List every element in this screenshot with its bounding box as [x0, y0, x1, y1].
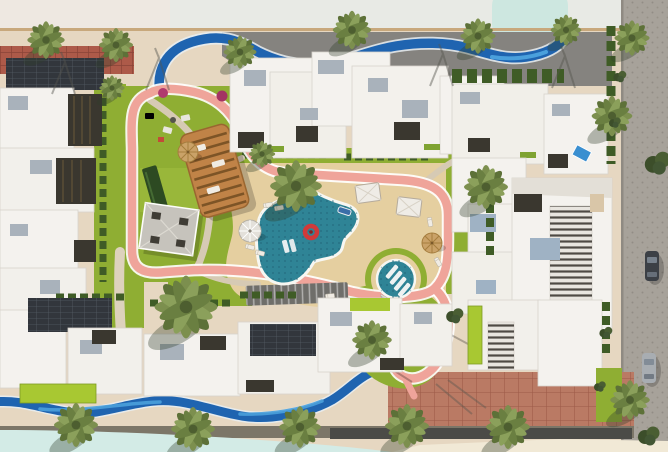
solar-roof-grid [250, 324, 316, 356]
cabana [355, 182, 381, 203]
roof-unit [552, 104, 570, 116]
roof-unit [460, 92, 480, 104]
roof-unit [414, 312, 432, 324]
balcony-slats [74, 240, 96, 262]
roof-unit [318, 60, 344, 74]
balcony-slats [468, 138, 490, 152]
masterplan-svg [0, 0, 668, 452]
bottom-road [330, 428, 632, 439]
balcony-slats [548, 154, 568, 168]
balcony-slats [56, 158, 96, 204]
terrace [590, 194, 604, 212]
seating-pavilion [138, 203, 204, 262]
roof-unit [8, 96, 28, 110]
louver-stripes [488, 322, 514, 370]
balcony-slats [394, 122, 420, 140]
round-pool [377, 260, 415, 298]
balcony-slats [380, 358, 404, 370]
building [538, 300, 602, 386]
play-equipment [170, 117, 176, 123]
bougainvillea-bush [217, 91, 228, 102]
green-roof-terrace [20, 384, 96, 403]
lawn-strip [468, 306, 482, 364]
roof-unit [40, 280, 60, 294]
roof-unit [300, 108, 318, 120]
roof-unit [10, 224, 28, 236]
planter [424, 144, 440, 150]
north-residential-row [230, 52, 608, 174]
courtyard-inset [514, 194, 542, 212]
solar-roof-grid [28, 298, 112, 332]
cabana [396, 197, 422, 218]
balcony-slats [296, 126, 318, 142]
red-float-center [309, 230, 313, 234]
roof-unit [368, 78, 388, 92]
balcony-slats [246, 380, 274, 392]
balcony-slats [200, 336, 226, 350]
bougainvillea-bush [158, 88, 168, 98]
roof-unit [402, 100, 428, 118]
masterplan-render [0, 0, 668, 452]
pavilion-table [179, 218, 189, 226]
roof-unit [244, 70, 266, 86]
play-equipment [158, 137, 164, 142]
pavilion-table [176, 239, 186, 247]
building [0, 210, 78, 270]
roof-unit [476, 280, 496, 294]
roof-unit [30, 160, 52, 174]
roof-unit [530, 238, 560, 260]
pavilion-table [150, 236, 160, 244]
pavilion-table [151, 212, 161, 220]
balcony-slats [92, 330, 116, 344]
picnic-table [145, 113, 154, 119]
roof-unit [330, 312, 352, 326]
planter [520, 152, 536, 158]
green-roof-terrace [350, 298, 390, 311]
top-sky-band-left [0, 0, 170, 30]
